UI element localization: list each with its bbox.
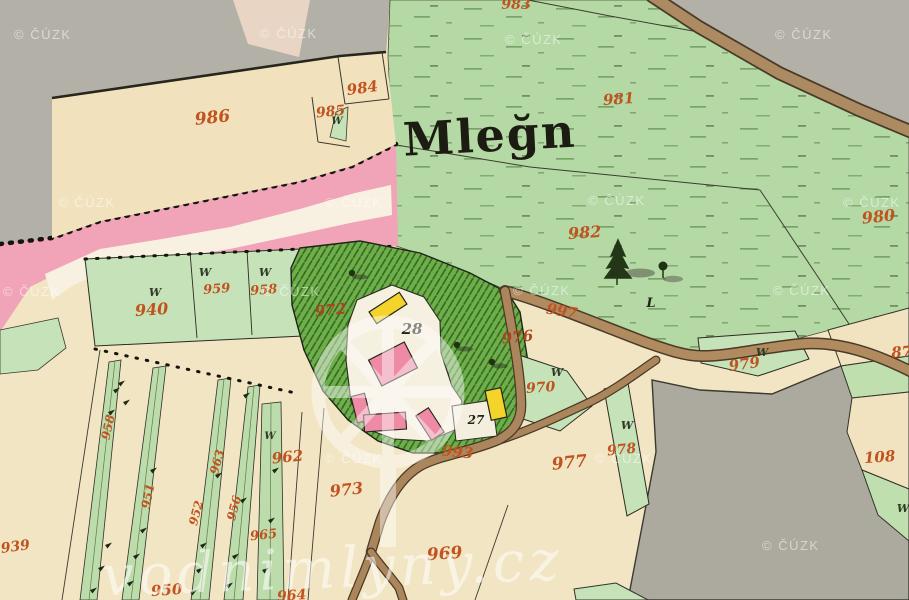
parcel-label-993: 993 [441, 441, 474, 462]
cuzk-watermark: © ČÚZK [513, 283, 571, 298]
cuzk-watermark: © ČÚZK [775, 27, 833, 42]
parcel-label-981: 981 [602, 89, 634, 109]
cuzk-watermark: © ČÚZK [260, 26, 318, 41]
cuzk-watermark: © ČÚZK [3, 284, 61, 299]
parcel-label-976: 976 [501, 326, 535, 347]
garden-tree-icon [349, 270, 355, 276]
tree-symbol-icon: W [199, 266, 213, 279]
parcel-label-970: 970 [526, 379, 557, 397]
cuzk-watermark: © ČÚZK [762, 538, 820, 553]
cadastral-map: WWWWWWWWW 986984985983981982980940959958… [0, 0, 909, 600]
map-title: Mleğn [402, 104, 578, 167]
parcel-label-973: 973 [329, 478, 364, 500]
tree-symbol-icon: W [149, 286, 163, 299]
parcel-label-972: 972 [314, 299, 347, 320]
parcel-label-940: 940 [134, 299, 169, 320]
garden-tree-icon [454, 342, 460, 348]
parcel-label-87: 87 [891, 342, 909, 361]
cuzk-watermark: © ČÚZK [773, 283, 831, 298]
cuzk-watermark: © ČÚZK [843, 195, 901, 210]
parcel-label-985: 985 [315, 103, 346, 122]
parcel-label-959: 959 [203, 281, 231, 298]
tree-symbol-icon: W [259, 266, 273, 279]
cuzk-watermark: © ČÚZK [263, 284, 321, 299]
deciduous-tree-icon [659, 262, 668, 271]
cuzk-watermark: © ČÚZK [325, 195, 383, 210]
parcel-label-L: L [645, 296, 655, 311]
garden-tree-icon [489, 359, 495, 365]
tree-symbol-icon: W [897, 502, 909, 515]
tree-symbol-icon: W [264, 431, 277, 442]
parcel-label-108: 108 [863, 447, 896, 467]
parcel-label-962: 962 [271, 446, 304, 467]
parcel-label-983: 983 [501, 0, 530, 13]
cuzk-watermark: © ČÚZK [588, 193, 646, 208]
cuzk-watermark: © ČÚZK [325, 451, 383, 466]
cuzk-watermark: © ČÚZK [595, 451, 653, 466]
tree-shadow [663, 276, 683, 282]
cuzk-watermark: © ČÚZK [14, 27, 72, 42]
parcel-label-27: 27 [467, 413, 485, 427]
tree-symbol-icon: W [621, 419, 635, 432]
parcel-label-982: 982 [567, 222, 602, 243]
cuzk-watermark: © ČÚZK [505, 32, 563, 47]
cadastral-map-viewport: WWWWWWWWW 986984985983981982980940959958… [0, 0, 909, 600]
cuzk-watermark: © ČÚZK [58, 195, 116, 210]
parcel-label-977: 977 [551, 451, 589, 475]
parcel-label-986: 986 [194, 106, 232, 130]
tree-symbol-icon: W [551, 366, 565, 379]
